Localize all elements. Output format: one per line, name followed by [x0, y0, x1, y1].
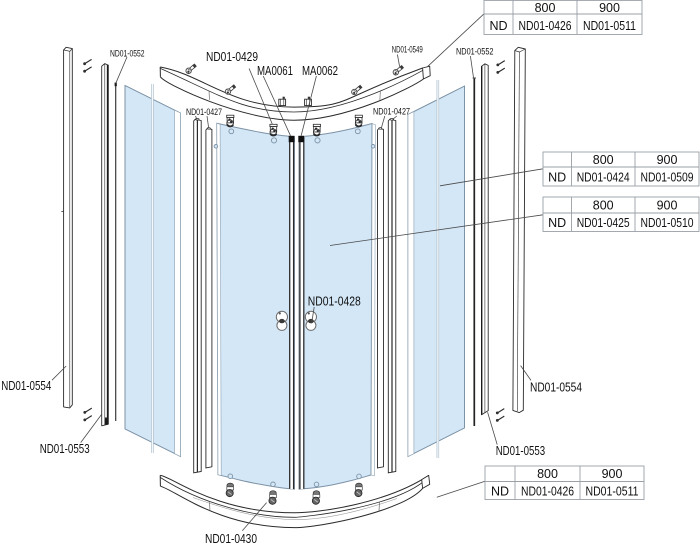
svg-text:800: 800 — [537, 467, 558, 481]
svg-text:ND01-0426: ND01-0426 — [519, 19, 572, 33]
svg-text:ND01-0425: ND01-0425 — [577, 216, 630, 230]
svg-text:900: 900 — [657, 153, 678, 167]
svg-text:MA0062: MA0062 — [302, 64, 338, 78]
svg-text:ND01-0424: ND01-0424 — [577, 170, 630, 184]
svg-text:ND: ND — [489, 19, 507, 33]
svg-text:ND01-0509: ND01-0509 — [641, 170, 694, 184]
svg-text:ND: ND — [491, 484, 509, 498]
svg-text:ND01-0430: ND01-0430 — [205, 532, 257, 546]
svg-text:800: 800 — [593, 199, 614, 213]
svg-text:900: 900 — [599, 1, 620, 15]
svg-text:ND01-0427: ND01-0427 — [373, 107, 410, 118]
svg-text:ND01-0426: ND01-0426 — [521, 484, 574, 498]
svg-text:ND01-0554: ND01-0554 — [1, 379, 51, 393]
svg-text:ND01-0553: ND01-0553 — [40, 442, 90, 456]
svg-text:ND01-0510: ND01-0510 — [641, 216, 694, 230]
svg-text:ND01-0553: ND01-0553 — [496, 444, 546, 458]
svg-text:800: 800 — [593, 153, 614, 167]
svg-text:ND01-0427: ND01-0427 — [186, 107, 222, 118]
svg-text:ND01-0549: ND01-0549 — [392, 45, 423, 56]
svg-text:ND: ND — [548, 170, 566, 184]
svg-text:ND01-0511: ND01-0511 — [586, 484, 639, 498]
svg-text:ND01-0552: ND01-0552 — [456, 47, 494, 58]
svg-text:900: 900 — [602, 467, 623, 481]
svg-text:ND01-0511: ND01-0511 — [583, 19, 636, 33]
svg-text:ND: ND — [548, 216, 566, 230]
svg-text:800: 800 — [535, 1, 556, 15]
svg-text:ND01-0429: ND01-0429 — [206, 50, 258, 64]
svg-text:MA0061: MA0061 — [257, 64, 293, 78]
svg-text:ND01-0552: ND01-0552 — [110, 49, 145, 60]
svg-text:ND01-0554: ND01-0554 — [530, 381, 582, 395]
svg-text:ND01-0428: ND01-0428 — [308, 295, 361, 309]
svg-text:900: 900 — [657, 199, 678, 213]
